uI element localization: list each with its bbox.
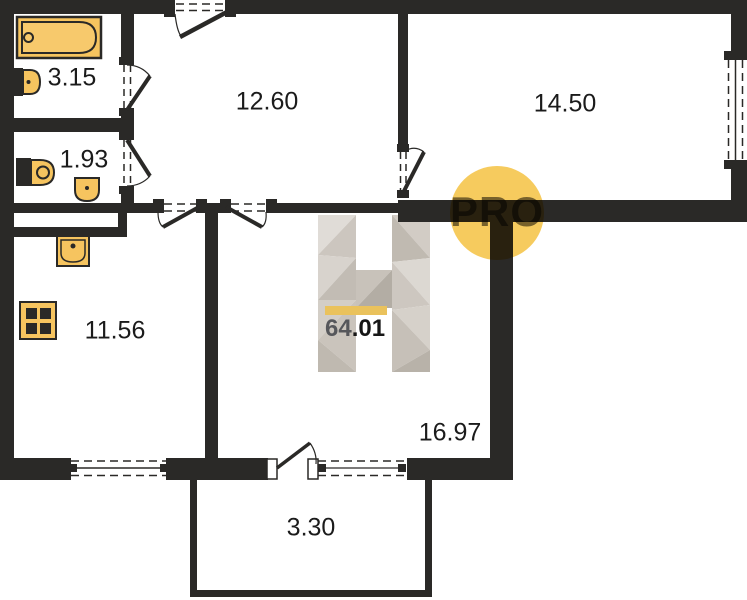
pro-badge: PRO (450, 166, 544, 260)
entrance-door (175, 4, 227, 37)
floor-plan: 3.15 1.93 12.60 14.50 11.56 16.97 3.30 6… (0, 0, 747, 600)
wc-sink-icon (75, 178, 99, 201)
kitchen-window (63, 458, 174, 480)
bathroom-area-label: 3.15 (48, 64, 97, 93)
kitchen-area-label: 11.56 (85, 317, 146, 346)
total-area-caption: 64.01 (325, 306, 405, 341)
toilet-icon (16, 158, 54, 186)
kitchen-door (158, 204, 199, 227)
kitchen-sink-icon (55, 229, 89, 266)
room-right-window (724, 51, 747, 169)
balcony-door-window (267, 443, 406, 479)
bathroom-door (124, 65, 150, 110)
wc-area-label: 1.93 (60, 146, 109, 175)
stove-icon (20, 302, 56, 339)
hallway-area-label: 12.60 (236, 88, 299, 117)
total-area-value: 64.01 (325, 317, 405, 341)
washbasin-icon (14, 68, 40, 96)
pro-badge-label: PRO (450, 188, 544, 236)
room-right-door (401, 148, 425, 191)
floor-plan-drawing (0, 0, 747, 600)
total-area-fraction: .01 (352, 315, 385, 342)
room-right-area-label: 14.50 (534, 90, 597, 119)
logo-watermark (318, 215, 430, 372)
wc-door (124, 140, 150, 186)
living-area-label: 16.97 (419, 419, 482, 448)
living-room-door (226, 204, 266, 227)
total-area-whole: 64 (325, 315, 352, 342)
bathtub-icon (17, 17, 101, 58)
balcony-area-label: 3.30 (287, 514, 336, 543)
logo-underline (325, 306, 387, 315)
